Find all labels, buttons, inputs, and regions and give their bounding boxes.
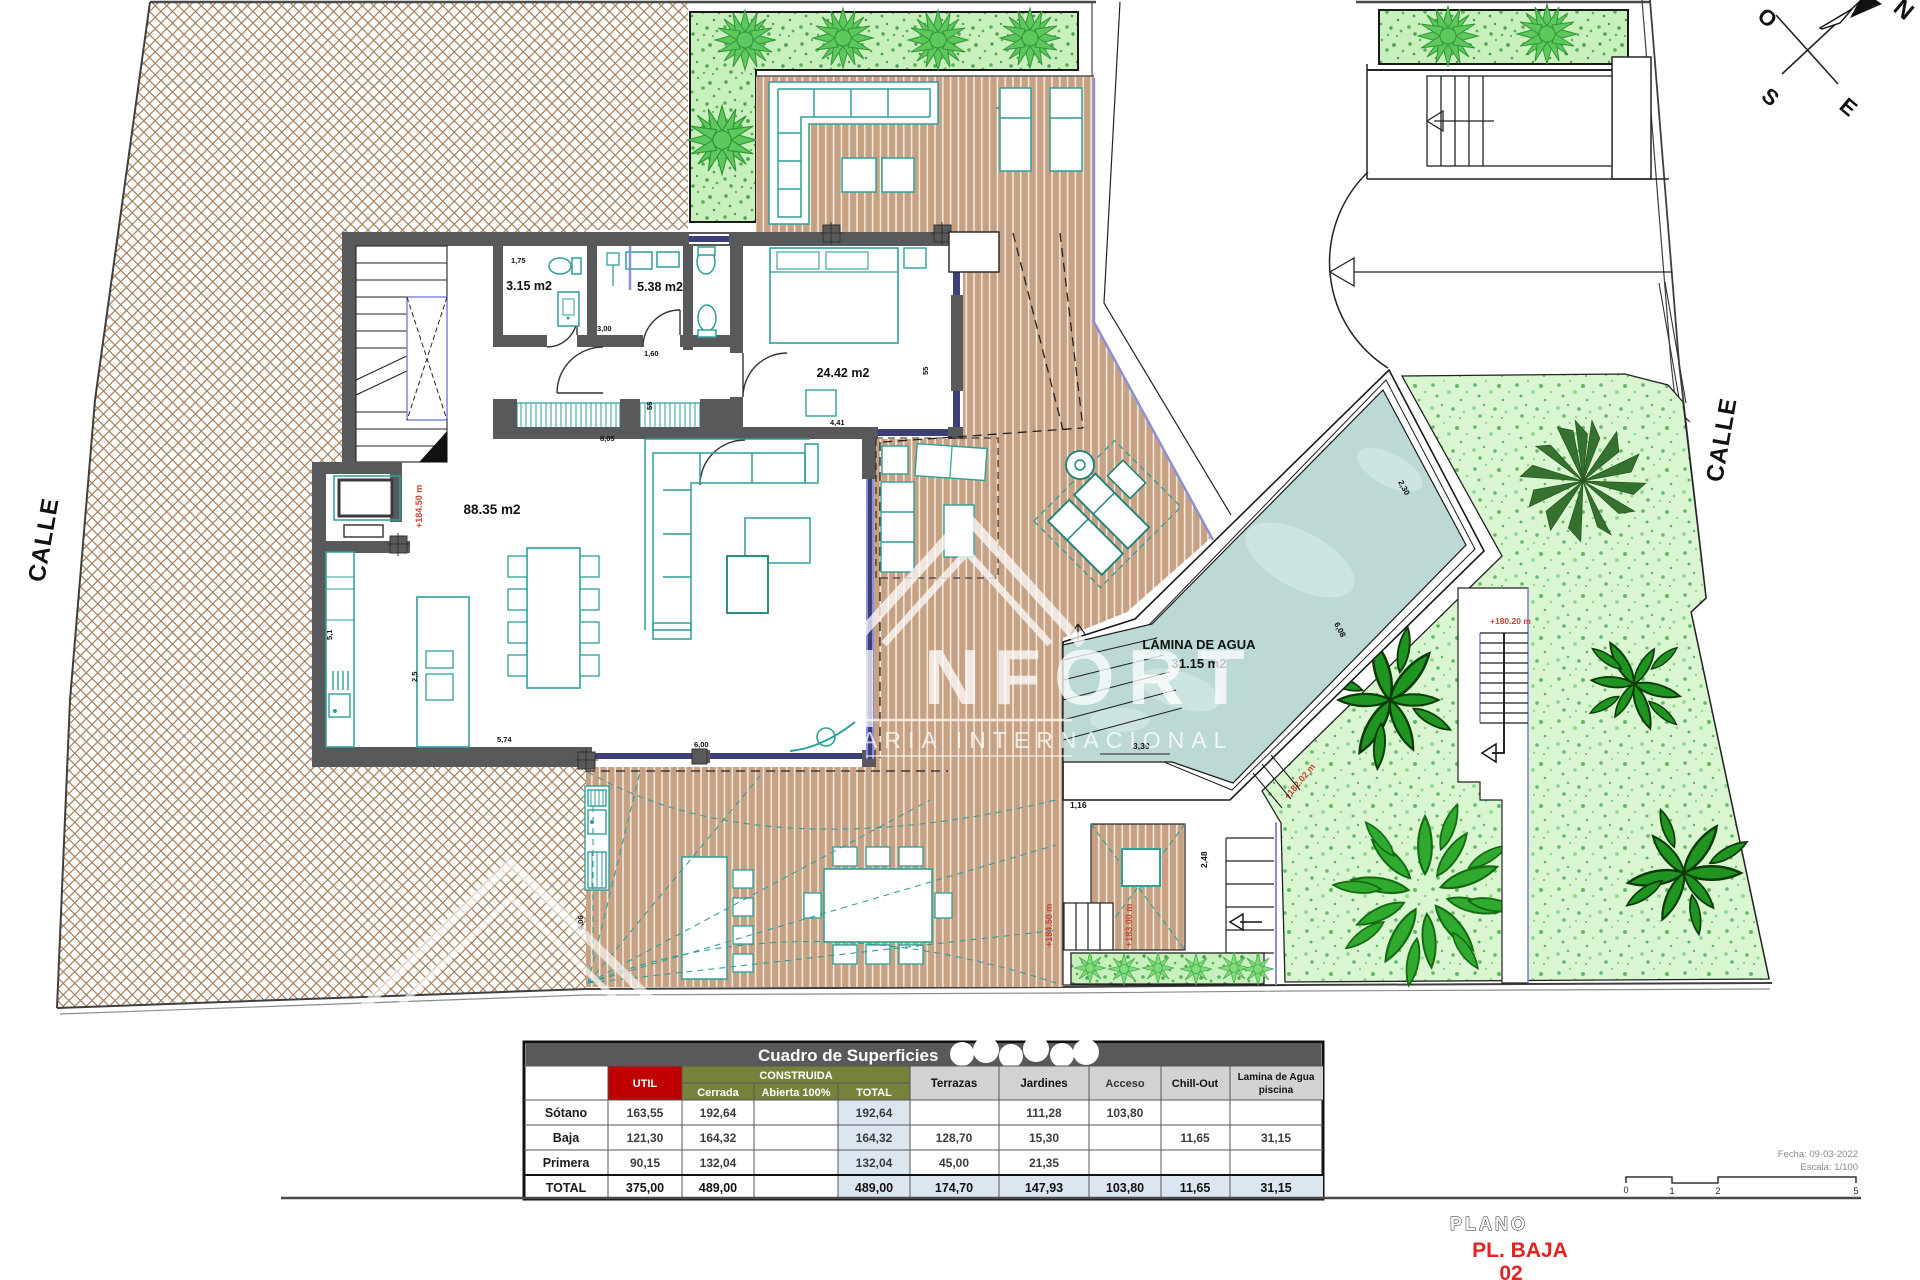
- svg-text:Fecha: 09-03-2022: Fecha: 09-03-2022: [1778, 1149, 1858, 1160]
- svg-text:88.35 m2: 88.35 m2: [463, 502, 520, 517]
- svg-text:piscina: piscina: [1259, 1085, 1294, 1096]
- svg-text:5,74: 5,74: [497, 735, 512, 744]
- svg-text:90,15: 90,15: [630, 1156, 660, 1170]
- svg-text:TOTAL: TOTAL: [856, 1087, 892, 1099]
- svg-text:55: 55: [645, 402, 654, 410]
- svg-text:31,15: 31,15: [1260, 1181, 1291, 1195]
- svg-text:NFORT: NFORT: [924, 633, 1258, 721]
- svg-text:1: 1: [1669, 1186, 1674, 1196]
- svg-text:1,75: 1,75: [511, 256, 526, 265]
- svg-text:2,5: 2,5: [410, 672, 419, 682]
- svg-text:164,32: 164,32: [700, 1131, 737, 1145]
- svg-text:121,30: 121,30: [627, 1131, 664, 1145]
- svg-text:+184.50 m: +184.50 m: [1044, 904, 1054, 947]
- svg-text:2: 2: [1715, 1186, 1720, 1196]
- svg-text:Terrazas: Terrazas: [931, 1078, 977, 1090]
- svg-text:147,93: 147,93: [1025, 1181, 1063, 1195]
- svg-text:11,65: 11,65: [1180, 1181, 1211, 1195]
- svg-text:0: 0: [1623, 1185, 1628, 1195]
- svg-text:103,80: 103,80: [1106, 1181, 1144, 1195]
- svg-text:Cerrada: Cerrada: [697, 1087, 739, 1099]
- svg-text:Chill-Out: Chill-Out: [1172, 1078, 1219, 1090]
- svg-text:21,35: 21,35: [1029, 1156, 1059, 1170]
- svg-text:1,16: 1,16: [1070, 800, 1087, 810]
- svg-text:Jardines: Jardines: [1020, 1078, 1067, 1090]
- svg-text:4,41: 4,41: [830, 418, 845, 427]
- svg-text:Acceso: Acceso: [1105, 1078, 1144, 1090]
- svg-text:111,28: 111,28: [1026, 1106, 1062, 1120]
- svg-text:192,64: 192,64: [700, 1106, 737, 1120]
- svg-text:6,00: 6,00: [694, 740, 709, 749]
- svg-text:45,00: 45,00: [939, 1156, 969, 1170]
- svg-text:Primera: Primera: [543, 1156, 591, 1170]
- svg-text:TOTAL: TOTAL: [546, 1181, 587, 1195]
- svg-text:132,04: 132,04: [700, 1156, 737, 1170]
- svg-text:375,00: 375,00: [626, 1181, 664, 1195]
- svg-text:103,80: 103,80: [1107, 1106, 1144, 1120]
- svg-text:PLANO: PLANO: [1450, 1214, 1528, 1234]
- svg-text:UTIL: UTIL: [633, 1078, 658, 1090]
- svg-text:Lamina de Agua: Lamina de Agua: [1238, 1072, 1315, 1083]
- svg-text:3,00: 3,00: [597, 324, 612, 333]
- svg-text:Baja: Baja: [553, 1131, 580, 1145]
- svg-text:24.42 m2: 24.42 m2: [817, 366, 870, 380]
- svg-text:5,1: 5,1: [325, 630, 334, 640]
- svg-text:2,48: 2,48: [1199, 851, 1209, 868]
- svg-text:3.15 m2: 3.15 m2: [506, 279, 552, 293]
- svg-text:164,32: 164,32: [856, 1131, 893, 1145]
- svg-text:11,65: 11,65: [1180, 1131, 1210, 1145]
- svg-text:489,00: 489,00: [855, 1181, 893, 1195]
- svg-text:1,60: 1,60: [644, 349, 659, 358]
- svg-text:55: 55: [921, 367, 930, 375]
- svg-text:Cuadro de Superficies: Cuadro de Superficies: [758, 1046, 938, 1065]
- svg-text:192,64: 192,64: [856, 1106, 893, 1120]
- svg-text:15,30: 15,30: [1029, 1131, 1059, 1145]
- svg-text:489,00: 489,00: [699, 1181, 737, 1195]
- svg-text:5: 5: [1853, 1186, 1858, 1196]
- svg-text:+180.20 m: +180.20 m: [1490, 616, 1531, 626]
- svg-text:5.38 m2: 5.38 m2: [637, 280, 683, 294]
- svg-text:8,05: 8,05: [600, 434, 615, 443]
- svg-text:163,55: 163,55: [627, 1106, 664, 1120]
- svg-text:174,70: 174,70: [935, 1181, 973, 1195]
- svg-text:Escala: 1/100: Escala: 1/100: [1800, 1162, 1858, 1173]
- svg-text:132,04: 132,04: [856, 1156, 893, 1170]
- svg-text:Abierta 100%: Abierta 100%: [761, 1087, 830, 1099]
- svg-text:+183.00 m: +183.00 m: [1124, 904, 1134, 947]
- svg-text:128,70: 128,70: [936, 1131, 973, 1145]
- svg-text:PL. BAJA: PL. BAJA: [1472, 1239, 1568, 1262]
- svg-text:31,15: 31,15: [1261, 1131, 1291, 1145]
- svg-text:ARIA INTERNACIONAL: ARIA INTERNACIONAL: [862, 727, 1233, 753]
- svg-text:Sótano: Sótano: [545, 1106, 588, 1120]
- svg-text:CONSTRUIDA: CONSTRUIDA: [759, 1070, 832, 1082]
- svg-text:02: 02: [1499, 1262, 1522, 1280]
- svg-text:+184.50 m: +184.50 m: [414, 485, 424, 528]
